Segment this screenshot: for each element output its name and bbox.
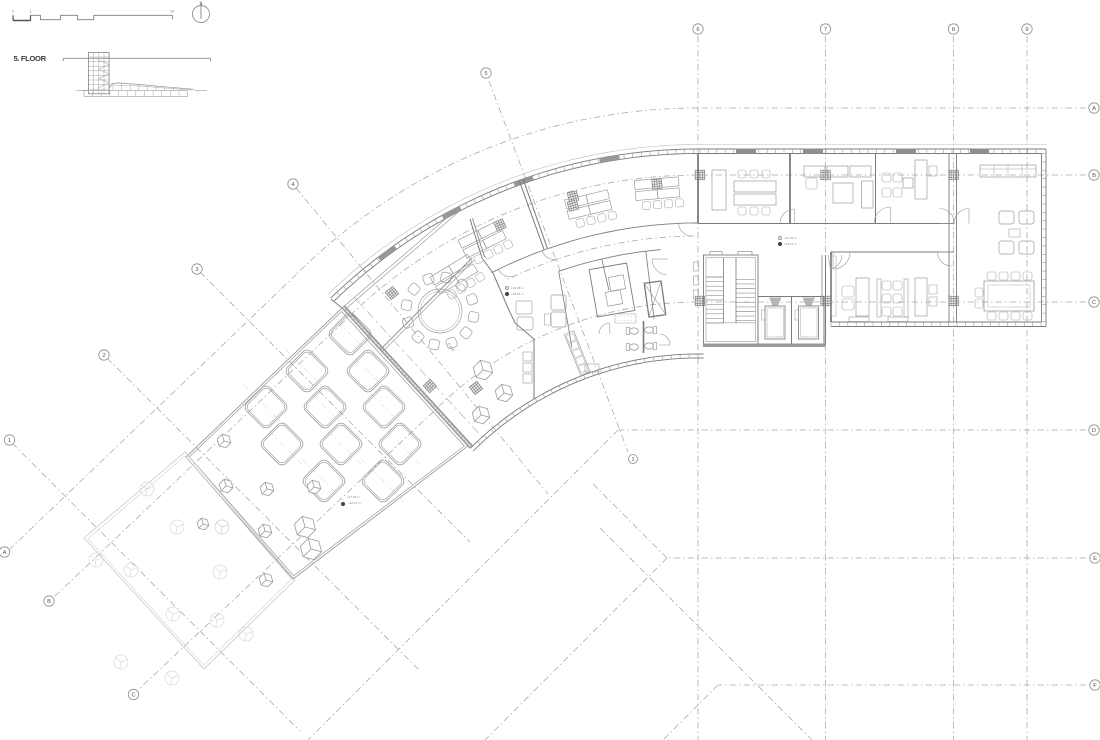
svg-text:1: 1 [631,457,634,463]
svg-text:2: 2 [102,353,105,359]
svg-text:A: A [1092,106,1096,112]
svg-text:3: 3 [195,267,198,273]
svg-text:B: B [47,599,51,605]
svg-text:9: 9 [1025,27,1028,33]
svg-text:5. FLOOR: 5. FLOOR [14,54,47,63]
svg-text:+18.15 m: +18.15 m [511,292,524,296]
svg-text:6: 6 [696,27,699,33]
svg-text:0: 0 [12,10,14,14]
svg-text:D: D [1092,428,1096,434]
svg-text:+19.35 m: +19.35 m [784,236,797,240]
svg-text:A: A [3,550,7,556]
svg-text:C: C [1092,300,1096,306]
svg-text:5: 5 [484,71,487,77]
svg-text:E: E [1093,556,1097,562]
svg-text:+18.15 m: +18.15 m [784,242,797,246]
svg-text:7: 7 [824,27,827,33]
svg-text:8: 8 [952,27,955,33]
svg-text:N: N [200,0,203,5]
svg-text:F: F [1093,683,1097,689]
svg-text:B: B [1092,173,1096,179]
svg-text:+19.35 m: +19.35 m [511,286,524,290]
svg-text:+16.15 m: +16.15 m [348,501,361,505]
svg-text:C: C [131,693,135,699]
svg-text:10: 10 [170,10,174,14]
svg-text:1: 1 [30,10,32,14]
svg-text:1: 1 [8,438,11,444]
svg-text:+17.35 m: +17.35 m [347,495,360,499]
